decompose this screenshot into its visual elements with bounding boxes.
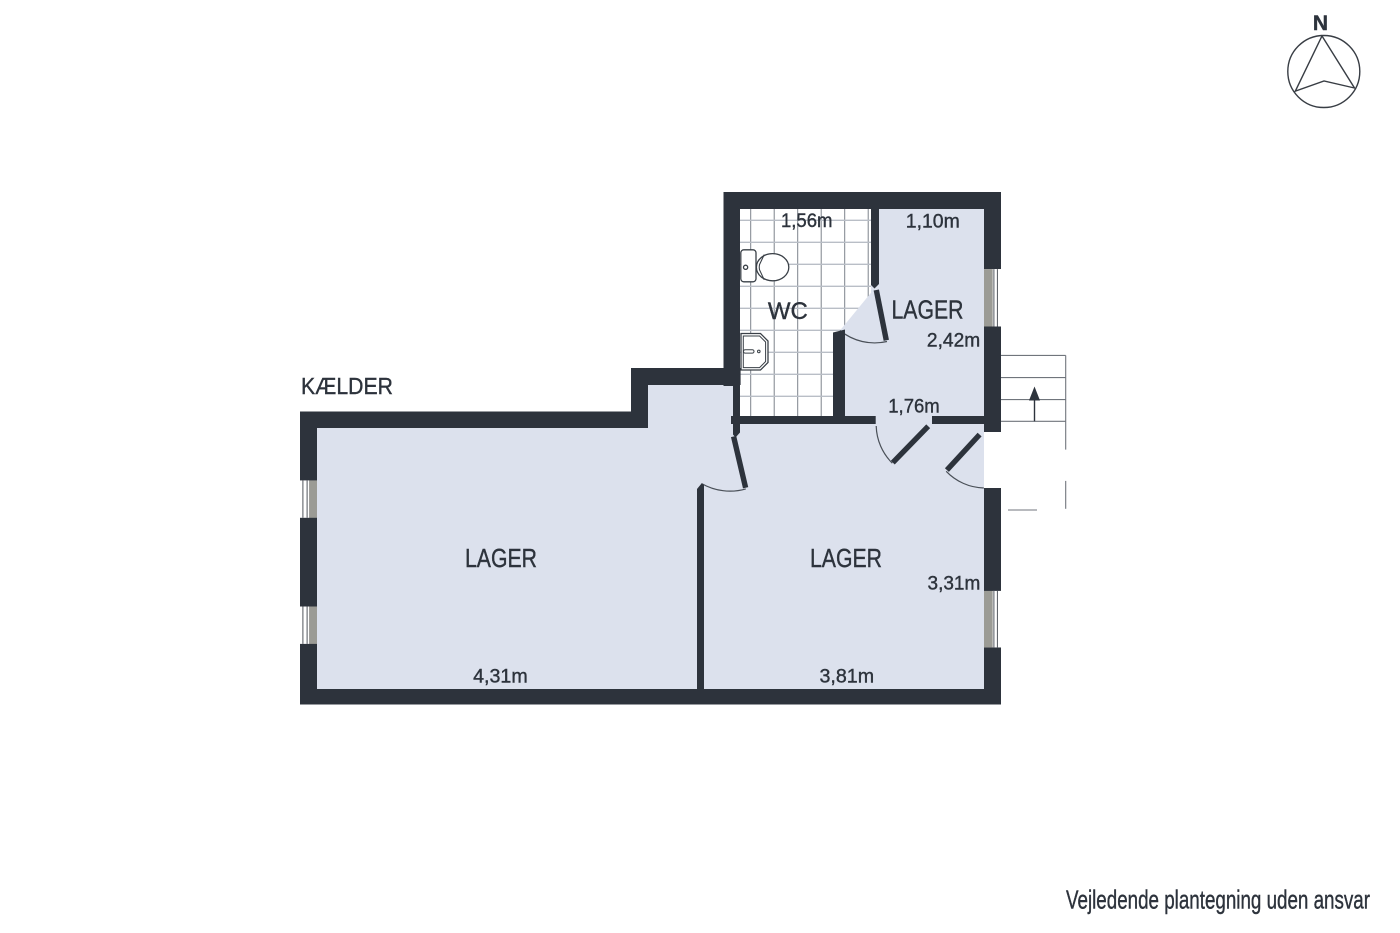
svg-text:WC: WC: [768, 298, 808, 325]
svg-text:Vejledende plantegning uden an: Vejledende plantegning uden ansvar: [1066, 885, 1370, 915]
svg-text:2,42m: 2,42m: [927, 331, 980, 352]
svg-text:LAGER: LAGER: [465, 543, 537, 573]
svg-text:1,56m: 1,56m: [781, 211, 833, 232]
svg-text:3,31m: 3,31m: [928, 574, 981, 595]
svg-text:4,31m: 4,31m: [473, 667, 528, 688]
svg-text:KÆLDER: KÆLDER: [301, 373, 393, 399]
svg-text:1,10m: 1,10m: [906, 212, 960, 233]
svg-text:1,76m: 1,76m: [888, 396, 940, 417]
svg-text:LAGER: LAGER: [892, 295, 964, 325]
svg-text:3,81m: 3,81m: [820, 667, 875, 688]
svg-text:LAGER: LAGER: [810, 543, 882, 573]
svg-text:N: N: [1313, 12, 1328, 35]
